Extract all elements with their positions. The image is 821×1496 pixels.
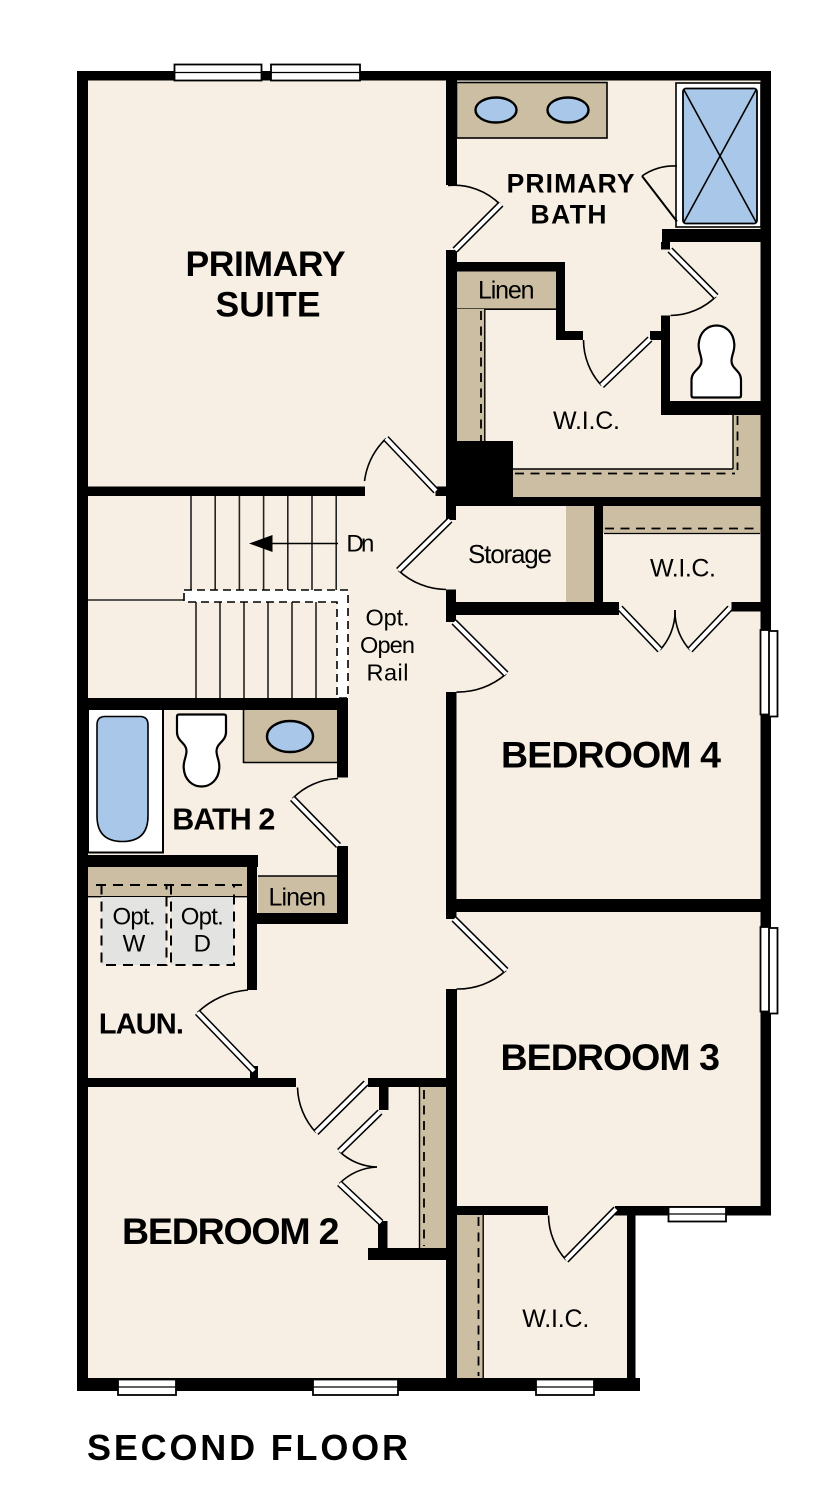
svg-text:Linen: Linen xyxy=(478,277,535,305)
svg-text:Open: Open xyxy=(360,632,415,658)
svg-text:D: D xyxy=(194,931,211,958)
svg-text:Opt.: Opt. xyxy=(366,605,410,631)
svg-text:BATH 2: BATH 2 xyxy=(172,803,275,837)
svg-text:W.I.C.: W.I.C. xyxy=(553,407,620,435)
svg-text:PRIMARY: PRIMARY xyxy=(186,244,346,284)
svg-text:SUITE: SUITE xyxy=(216,285,321,325)
svg-text:LAUN.: LAUN. xyxy=(99,1009,184,1041)
svg-text:W.I.C.: W.I.C. xyxy=(650,555,716,583)
svg-text:Storage: Storage xyxy=(468,539,552,569)
svg-text:PRIMARY: PRIMARY xyxy=(507,169,635,199)
svg-text:Opt.: Opt. xyxy=(181,904,224,931)
svg-text:BEDROOM 3: BEDROOM 3 xyxy=(501,1036,721,1078)
svg-text:W: W xyxy=(123,931,146,958)
svg-text:Linen: Linen xyxy=(269,884,327,912)
svg-text:Rail: Rail xyxy=(367,660,409,686)
svg-text:BEDROOM 2: BEDROOM 2 xyxy=(122,1210,340,1252)
svg-text:BEDROOM 4: BEDROOM 4 xyxy=(501,734,721,776)
svg-text:W.I.C.: W.I.C. xyxy=(522,1305,589,1333)
svg-text:Dn: Dn xyxy=(346,531,374,558)
svg-text:Opt.: Opt. xyxy=(113,904,156,931)
svg-text:SECOND FLOOR: SECOND FLOOR xyxy=(87,1427,408,1468)
